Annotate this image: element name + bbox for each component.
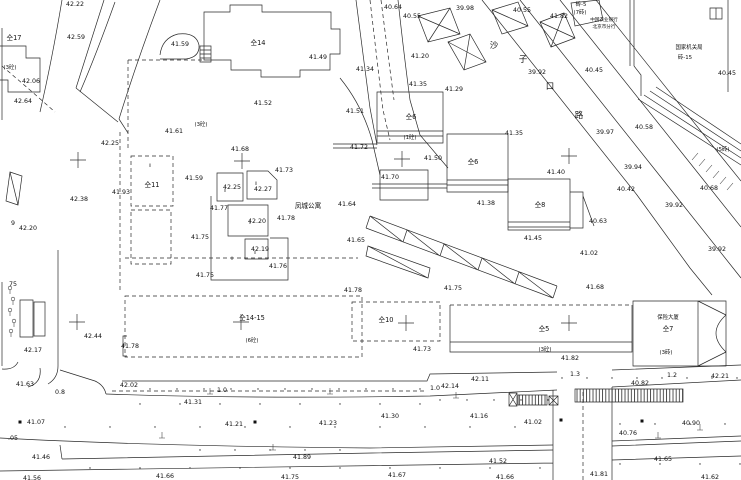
survey-point-dot: [469, 426, 470, 427]
survey-point-dot: [419, 388, 420, 389]
spot-elevation: 41.65: [654, 456, 672, 463]
storey-mark: ll: [231, 256, 233, 261]
road-width-label: 1.2: [667, 372, 677, 379]
south-building-outlines: [450, 301, 726, 366]
spot-elevation: 41.68: [586, 284, 604, 291]
survey-point-dot: [299, 403, 300, 404]
spot-elevation: 41.56: [23, 475, 41, 480]
spot-elevation: 41.35: [409, 81, 427, 88]
spot-elevation: 41.45: [524, 235, 542, 242]
spot-elevation: 41.30: [381, 413, 399, 420]
spot-elevation: 41.68: [231, 146, 249, 153]
spot-elevation: 41.21: [225, 421, 243, 428]
survey-point-dot: [189, 467, 190, 468]
spot-elevation: 41.50: [424, 155, 442, 162]
spot-elevation: 40.63: [589, 218, 607, 225]
building-label: 仝10: [379, 315, 394, 324]
spot-elevation: 41.40: [547, 169, 565, 176]
survey-point-dot: [365, 388, 366, 389]
spot-elevation: 41.75: [191, 234, 209, 241]
survey-point-dot: [89, 467, 90, 468]
spot-elevation: 42.59: [67, 34, 85, 41]
construction-note: (3砼): [3, 63, 16, 71]
cjk-label: 凤城公寓: [295, 201, 322, 210]
survey-point-dot: [176, 388, 177, 389]
spot-elevation: 40.68: [700, 185, 718, 192]
survey-point-dot: [699, 463, 700, 464]
building-label: 仝7: [663, 324, 674, 333]
survey-point-dot: [586, 377, 587, 378]
survey-point-dot: [244, 426, 245, 427]
survey-point-dot: [439, 467, 440, 468]
storey-mark: ll: [149, 163, 151, 168]
spot-elevation: 41.52: [254, 100, 272, 107]
spot-elevation: 42.17: [24, 347, 42, 354]
misc-label: .05: [8, 435, 18, 442]
grid-cross: [394, 151, 410, 167]
spot-elevation: 42.22: [66, 1, 84, 8]
spot-elevation: 40.42: [617, 186, 635, 193]
spot-elevation: 41.73: [275, 167, 293, 174]
survey-point-dot: [304, 449, 305, 450]
survey-point-dot: [179, 403, 180, 404]
survey-point-dot: [619, 423, 620, 424]
survey-point-dot: [339, 449, 340, 450]
road-width-label: 1.0: [430, 385, 440, 392]
survey-point-dot: [389, 467, 390, 468]
survey-point-dot: [539, 467, 540, 468]
northwest-street-lines: [2, 0, 160, 133]
storey-mark: ll: [249, 220, 251, 225]
spot-elevation: 42.11: [471, 376, 489, 383]
survey-point-dot: [619, 463, 620, 464]
building-label: 仝17: [7, 33, 22, 42]
utility-box-symbol: [560, 419, 563, 422]
spot-elevation: 42.27: [254, 186, 272, 193]
spot-elevation: 41.78: [121, 343, 139, 350]
survey-point-dot: [711, 377, 712, 378]
spot-elevation: 42.06: [22, 78, 40, 85]
spot-elevation: 41.73: [413, 346, 431, 353]
south-road-curbs: [0, 362, 741, 480]
spot-elevation: 40.64: [384, 4, 402, 11]
spot-elevation: 41.75: [444, 285, 462, 292]
spot-elevation: 41.77: [210, 205, 228, 212]
survey-point-dot: [392, 388, 393, 389]
spot-elevation: 41.02: [580, 250, 598, 257]
spot-elevation: 41.46: [32, 454, 50, 461]
spot-elevation: 41.78: [344, 287, 362, 294]
spot-elevation: 40.55: [513, 7, 531, 14]
building-label: 仝8: [535, 200, 546, 209]
construction-note: (3砖): [659, 348, 672, 356]
spot-elevation: 40.76: [619, 430, 637, 437]
building-label: 仝14-15: [239, 313, 265, 322]
grid-cross: [561, 315, 577, 331]
survey-point-dot: [334, 426, 335, 427]
office-block-outlines: [333, 92, 594, 230]
survey-point-dot: [514, 426, 515, 427]
construction-note: (3砼): [538, 345, 551, 353]
spot-elevation: 42.44: [84, 333, 102, 340]
spot-elevation: 41.66: [156, 473, 174, 480]
survey-point-dot: [64, 426, 65, 427]
grid-cross: [561, 148, 577, 164]
spot-elevation: 41.75: [196, 272, 214, 279]
survey-point-dot: [203, 388, 204, 389]
spot-elevation: 41.34: [356, 66, 374, 73]
spot-elevation: 41.61: [165, 128, 183, 135]
spot-elevation: 40.90: [682, 420, 700, 427]
survey-point-dot: [230, 388, 231, 389]
survey-point-dot: [109, 426, 110, 427]
survey-point-dot: [289, 426, 290, 427]
road-width-label: 1.3: [570, 371, 580, 378]
survey-point-dot: [654, 423, 655, 424]
spot-elevation: 40.82: [631, 380, 649, 387]
survey-point-dot: [489, 467, 490, 468]
grid-cross: [398, 315, 414, 331]
survey-point-dot: [611, 377, 612, 378]
storey-mark: ll: [254, 250, 256, 255]
spot-elevation: 41.67: [388, 472, 406, 479]
pole-tick: [655, 432, 661, 438]
survey-point-dot: [739, 463, 740, 464]
utility-box-symbol: [641, 420, 644, 423]
construction-note: (5砖): [716, 145, 729, 153]
spot-elevation: 41.89: [293, 454, 311, 461]
survey-point-dot: [149, 388, 150, 389]
survey-point-dot: [520, 399, 521, 400]
spot-elevation: 41.82: [550, 13, 568, 20]
spot-elevation: 42.38: [70, 196, 88, 203]
survey-point-dot: [661, 377, 662, 378]
cjk-label: 北京市分行: [593, 23, 616, 30]
spot-elevation: 41.38: [477, 200, 495, 207]
street-name-char: 子: [519, 55, 528, 65]
building-label: 仝6: [468, 157, 479, 166]
spot-elevation: 41.59: [171, 41, 189, 48]
survey-point-dot: [139, 467, 140, 468]
spot-elevation: 41.35: [505, 130, 523, 137]
survey-point-dot: [659, 463, 660, 464]
spot-elevation: 41.02: [524, 419, 542, 426]
footbridge-and-barriers: [509, 389, 683, 406]
street-name-char: 沙: [490, 41, 499, 51]
survey-point-dot: [284, 388, 285, 389]
spot-elevation: 39.98: [456, 5, 474, 12]
street-name-char: 路: [575, 110, 584, 121]
spot-elevation: 40.55: [403, 13, 421, 20]
building-label: 仝14: [251, 38, 266, 47]
spot-elevation: 41.63: [16, 381, 34, 388]
spot-elevation: 41.49: [309, 54, 327, 61]
apartment-cluster-outlines: [123, 171, 288, 356]
spot-elevation: 41.59: [185, 175, 203, 182]
hatched-median: [518, 395, 547, 405]
spot-elevation: 41.81: [590, 471, 608, 478]
cjk-label: 中国农业银行: [590, 16, 618, 23]
survey-point-dot: [339, 467, 340, 468]
spot-elevation: 42.21: [711, 373, 729, 380]
survey-point-dot: [219, 403, 220, 404]
spot-elevation: 42.20: [19, 225, 37, 232]
grid-cross: [234, 153, 250, 169]
building-label: 仝5: [539, 324, 550, 333]
survey-point-dot: [379, 403, 380, 404]
survey-point-dot: [636, 377, 637, 378]
spot-elevation: 41.20: [411, 53, 429, 60]
spot-elevation: 41.65: [347, 237, 365, 244]
survey-point-dot: [239, 467, 240, 468]
spot-elevation: 39.92: [528, 69, 546, 76]
spot-elevation: 39.92: [665, 202, 683, 209]
survey-drawing-canvas: 42.2242.5941.5942.0642.6441.6142.2541.68…: [0, 0, 741, 480]
survey-point-dot: [736, 377, 737, 378]
spot-elevation: 41.52: [489, 458, 507, 465]
survey-point-dot: [379, 426, 380, 427]
spot-elevation: 41.70: [381, 174, 399, 181]
survey-point-dot: [689, 423, 690, 424]
spot-elevation: 39.97: [596, 129, 614, 136]
misc-label: 9: [11, 220, 15, 227]
street-name-char: 口: [546, 82, 555, 92]
road-width-label: 1.0: [217, 387, 227, 394]
survey-point-dot: [259, 403, 260, 404]
survey-point-dot: [466, 399, 467, 400]
survey-point-dot: [338, 388, 339, 389]
spot-elevation: 41.31: [184, 399, 202, 406]
survey-point-dot: [439, 399, 440, 400]
spot-elevation: 41.72: [350, 144, 368, 151]
survey-point-dot: [234, 449, 235, 450]
spot-elevation: 40.45: [718, 70, 736, 77]
survey-point-dot: [561, 377, 562, 378]
grid-cross: [69, 314, 85, 330]
spot-elevation: 40.45: [585, 67, 603, 74]
spot-elevation: 42.64: [14, 98, 32, 105]
survey-point-dot: [686, 377, 687, 378]
survey-point-dot: [724, 423, 725, 424]
cjk-label: 国家机关局: [676, 43, 703, 51]
topographic-survey-map: 42.2242.5941.5942.0642.6441.6142.2541.68…: [0, 0, 741, 480]
cjk-label: 砖-15: [678, 53, 692, 61]
building-label: 仝6: [406, 112, 417, 121]
footbridge-hatched: [575, 389, 683, 402]
survey-point-dot: [257, 388, 258, 389]
survey-point-dot: [139, 403, 140, 404]
spot-elevation: 42.14: [441, 383, 459, 390]
spot-elevation: 41.66: [496, 474, 514, 480]
survey-point-dot: [199, 449, 200, 450]
storey-mark: ll: [255, 181, 257, 186]
spot-elevation: 41.29: [445, 86, 463, 93]
survey-point-dot: [493, 399, 494, 400]
spot-elevation: 41.64: [338, 201, 356, 208]
spot-elevation: 42.02: [120, 382, 138, 389]
utility-box-symbol: [254, 421, 257, 424]
survey-point-dot: [289, 467, 290, 468]
misc-label: 75: [9, 281, 17, 288]
survey-point-dot: [154, 426, 155, 427]
survey-point-dot: [339, 403, 340, 404]
survey-point-dot: [547, 399, 548, 400]
spot-elevation: 41.76: [269, 263, 287, 270]
spot-elevation: 41.93: [112, 189, 130, 196]
spot-elevation: 41.82: [561, 355, 579, 362]
construction-note: (6砼): [245, 336, 258, 344]
spot-elevation: 41.51: [346, 108, 364, 115]
construction-note: (7砖): [573, 8, 586, 16]
spot-elevation: 41.07: [27, 419, 45, 426]
survey-point-dot: [311, 388, 312, 389]
survey-point-dot: [199, 426, 200, 427]
storey-mark: ll: [224, 188, 226, 193]
grid-cross: [70, 152, 86, 168]
spot-elevation: 41.78: [277, 215, 295, 222]
cjk-label: 保险大厦: [657, 313, 679, 321]
survey-point-dot: [424, 426, 425, 427]
spot-elevation: 41.62: [701, 474, 719, 480]
spot-elevation: 41.23: [319, 420, 337, 427]
road-width-label: 0.8: [55, 389, 65, 396]
spot-elevation: 41.75: [281, 474, 299, 480]
building-label: 仝11: [145, 180, 160, 189]
survey-point-dot: [419, 403, 420, 404]
spot-elevation: 40.58: [635, 124, 653, 131]
utility-box-symbol: [19, 421, 22, 424]
construction-note: (3砼): [194, 120, 207, 128]
construction-note: 砖-5: [576, 0, 587, 8]
spot-elevation: 39.92: [708, 246, 726, 253]
construction-note: (1砼): [403, 133, 416, 141]
pole-tick: [159, 432, 165, 438]
spot-elevation: 39.94: [624, 164, 642, 171]
spot-elevation: 41.16: [470, 413, 488, 420]
spot-elevation: 42.25: [101, 140, 119, 147]
